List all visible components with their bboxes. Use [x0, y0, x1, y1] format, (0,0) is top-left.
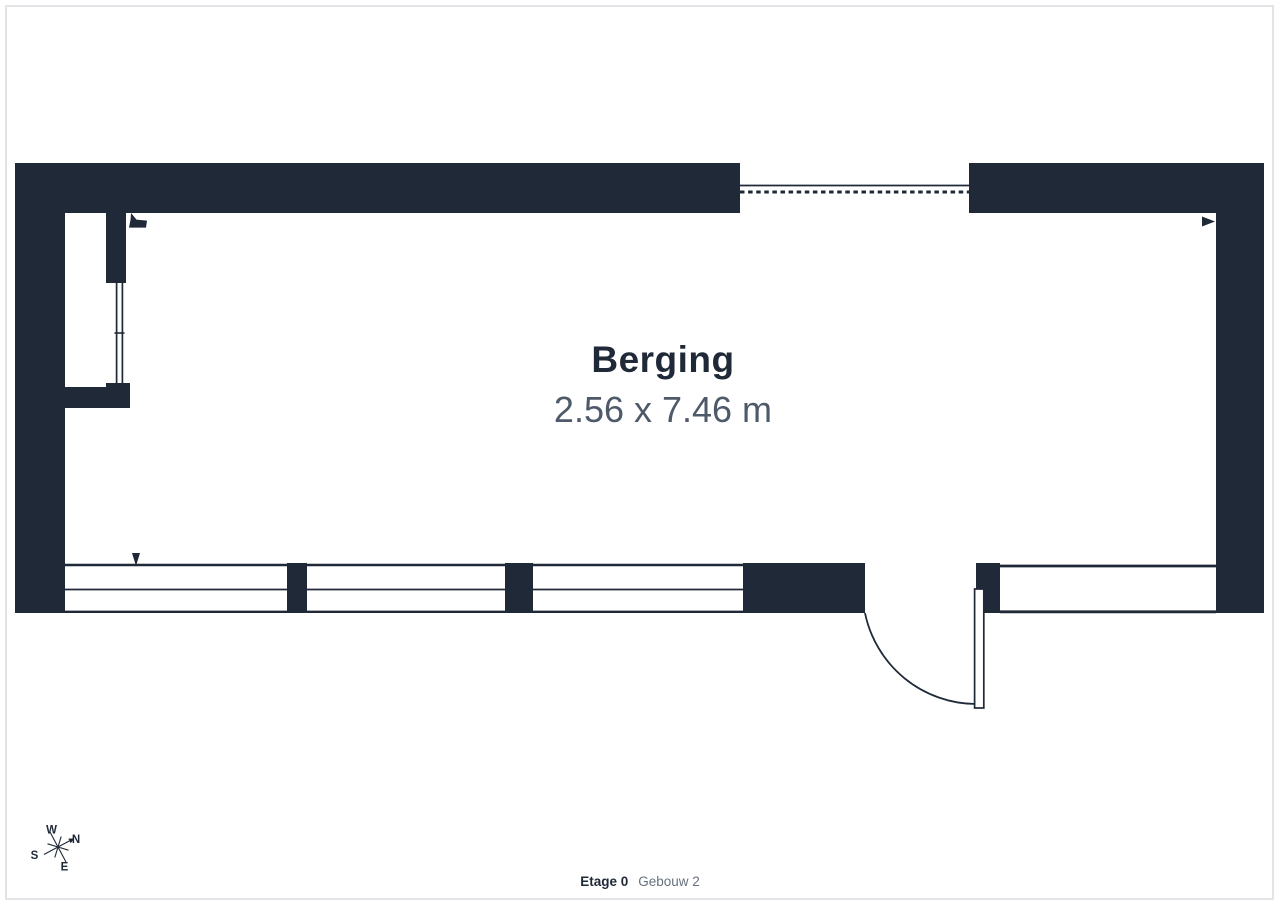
wall-interior-ledge	[65, 387, 130, 408]
window-mullion-2	[505, 563, 533, 613]
compass-label-west: W	[46, 825, 57, 837]
room-dimensions: 2.56 x 7.46 m	[363, 389, 963, 430]
floorplan-page: N E S W Berging 2.56 x 7.46 m Etage 0 Ge…	[0, 0, 1280, 905]
plan-footer: Etage 0 Gebouw 2	[0, 874, 1280, 889]
building-label: Gebouw 2	[638, 874, 700, 889]
right-direction-arrow-icon	[1202, 217, 1215, 227]
left-interior-window	[115, 283, 125, 388]
compass-label-south: S	[31, 850, 39, 862]
wall-left	[15, 163, 65, 613]
door	[865, 589, 984, 708]
wall-opening	[740, 186, 969, 193]
window-mullion-1	[287, 563, 307, 613]
compass-label-north: N	[72, 834, 80, 846]
room-label: Berging 2.56 x 7.46 m	[363, 338, 963, 431]
wall-right	[1216, 163, 1264, 613]
door-hinge-wall-block	[743, 563, 865, 613]
compass-spokes	[44, 832, 70, 862]
door-leaf	[975, 589, 984, 708]
wall-top-left-segment	[15, 163, 740, 213]
entrance-arrow-icon	[129, 213, 147, 228]
wall-interior-upper	[106, 212, 126, 283]
compass-label-east: E	[61, 862, 69, 874]
door-swing-arc	[865, 613, 976, 704]
floor-label: Etage 0	[580, 874, 628, 889]
floorplan-drawing: N E S W	[0, 0, 1280, 905]
bottom-windows	[65, 565, 1216, 612]
compass-rose-icon: N E S W	[31, 825, 80, 874]
room-name: Berging	[363, 338, 963, 382]
